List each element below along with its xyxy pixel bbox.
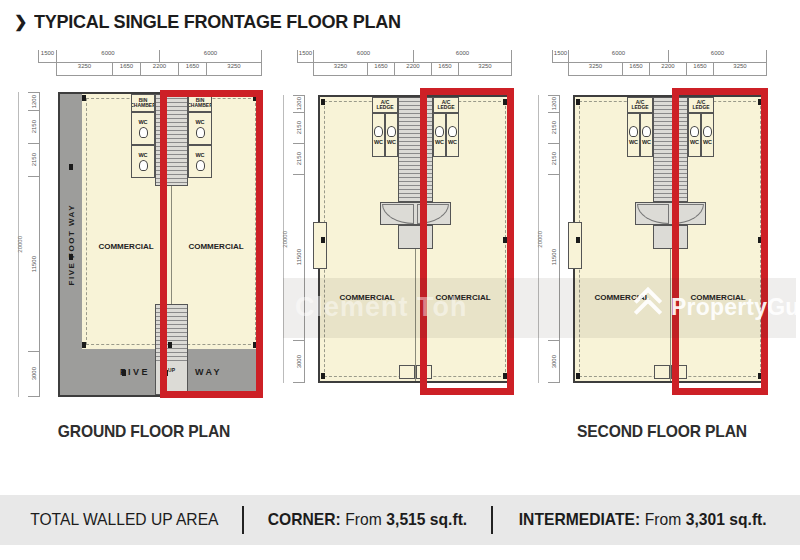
five-foot-way-left: FIVE FOOT WAY: [60, 94, 82, 395]
ac-ledge-side-box: [568, 222, 582, 269]
dimension-label: 6000: [456, 50, 469, 57]
highlighted-unit-outline: [672, 88, 768, 395]
dimension-column-left: 1200 2150 2150 11500 3000: [28, 92, 40, 397]
wc-room: WC: [385, 113, 398, 157]
dimension-label: 6000: [612, 50, 625, 57]
column-marker: [69, 164, 73, 170]
dimension-label: 2150: [31, 153, 37, 166]
brand-watermark-text: PropertyGuru: [671, 294, 800, 321]
dimension-row-top: 1500 6000 6000: [297, 50, 512, 63]
meter-box: [654, 365, 670, 379]
dimension-label: 3250: [78, 63, 91, 70]
column-marker: [576, 237, 580, 243]
column-marker: [82, 95, 86, 101]
dimension-label: 3000: [296, 355, 302, 368]
ground-floor-plan: 1500 6000 6000 3250 1650 2200 1650 3250 …: [18, 50, 270, 450]
dimension-label: 1500: [299, 50, 312, 57]
meter-box: [399, 365, 415, 379]
dimension-label: 1200: [296, 97, 302, 110]
intermediate-from: From: [645, 510, 681, 530]
dimension-label: 6000: [357, 50, 370, 57]
dimension-label: 1650: [374, 63, 387, 70]
wc-room: WC: [131, 145, 155, 178]
area-label: TOTAL WALLED UP AREA: [31, 510, 219, 530]
room-label: WC: [629, 139, 638, 145]
dimension-label: 6000: [204, 50, 217, 57]
dimension-total: 20000: [18, 92, 28, 397]
dimension-label: 3250: [478, 63, 491, 70]
dimension-label: 1650: [629, 63, 642, 70]
wc-room: WC: [372, 113, 385, 157]
divider: [491, 506, 493, 534]
dimension-label: 1500: [41, 50, 54, 57]
corner-from: From: [345, 510, 381, 530]
dimension-label: 11500: [551, 249, 557, 265]
column-marker: [122, 370, 126, 376]
total-walled-up-area-label: TOTAL WALLED UP AREA: [31, 510, 219, 530]
room-label: WC: [374, 139, 383, 145]
corner-area: CORNER: From 3,515 sq.ft.: [268, 510, 468, 530]
dimension-total: 20000: [538, 95, 548, 383]
ac-ledge-room: A/C LEDGE: [372, 97, 398, 113]
divider: [242, 506, 244, 534]
intermediate-value: 3,301 sq.ft.: [686, 510, 767, 530]
column-marker: [82, 342, 86, 348]
intermediate-area: INTERMEDIATE: From 3,301 sq.ft.: [519, 510, 767, 530]
dimension-label: 20000: [17, 236, 23, 253]
dimension-label: 2150: [551, 152, 557, 165]
dimension-label: 2150: [296, 121, 302, 134]
column-marker: [321, 373, 325, 379]
dimension-row-top: 1500 6000 6000: [552, 50, 767, 63]
room-label: A/C LEDGE: [373, 100, 397, 111]
toilet-icon: [139, 160, 148, 171]
room-label: WC: [138, 152, 147, 158]
wc-room: WC: [640, 113, 653, 157]
dimension-row-sub: 3250 1650 2200 1650 3250: [568, 63, 767, 76]
toilet-icon: [374, 126, 383, 137]
toilet-icon: [642, 126, 651, 137]
column-marker: [69, 254, 73, 260]
corner-label: CORNER:: [268, 510, 341, 530]
dimension-label: 1650: [438, 63, 451, 70]
dimension-label: 2150: [296, 152, 302, 165]
plan-label: SECOND FLOOR PLAN: [546, 422, 778, 442]
dimension-label: 6000: [711, 50, 724, 57]
dimension-label: 1200: [551, 97, 557, 110]
dimension-total: 20000: [283, 95, 293, 383]
column-marker: [576, 373, 580, 379]
column-marker: [321, 237, 325, 243]
dimension-label: 20000: [537, 231, 543, 248]
ac-ledge-side-box: [313, 222, 327, 269]
commercial-label: COMMERCIAL: [98, 242, 153, 251]
dimension-row-top: 1500 6000 6000: [38, 50, 262, 63]
area-summary-bar: TOTAL WALLED UP AREA CORNER: From 3,515 …: [0, 495, 800, 545]
dimension-label: 3000: [31, 367, 37, 380]
room-label: BIN CHAMBER: [131, 98, 155, 109]
dimension-label: 1650: [186, 63, 199, 70]
page-title-text: TYPICAL SINGLE FRONTAGE FLOOR PLAN: [34, 11, 401, 33]
room-label: A/C LEDGE: [628, 100, 652, 111]
dimension-label: 3250: [334, 63, 347, 70]
room-label: WC: [138, 119, 147, 125]
dimension-label: 2200: [661, 63, 674, 70]
first-floor-plan: 1500 6000 6000 3250 1650 2200 1650 3250 …: [283, 50, 531, 450]
room-label: WC: [387, 139, 396, 145]
dimension-label: 1500: [554, 50, 567, 57]
dimension-label: 3000: [551, 355, 557, 368]
chevron-right-icon: ❯: [14, 14, 27, 30]
dimension-label: 1200: [31, 95, 37, 108]
dimension-column-left: 1200 2150 2150 11500 3000: [548, 95, 560, 383]
dimension-label: 3250: [733, 63, 746, 70]
dimension-label: 2150: [551, 121, 557, 134]
dimension-label: 1650: [120, 63, 133, 70]
column-marker: [576, 99, 580, 105]
second-floor-plan: 1500 6000 6000 3250 1650 2200 1650 3250 …: [536, 50, 788, 450]
dimension-label: 2200: [153, 63, 166, 70]
plan-label: GROUND FLOOR PLAN: [28, 422, 260, 442]
toilet-icon: [139, 127, 148, 138]
corner-value: 3,515 sq.ft.: [387, 510, 468, 530]
room-label: WC: [642, 139, 651, 145]
page-title: ❯ TYPICAL SINGLE FRONTAGE FLOOR PLAN: [14, 11, 420, 33]
dimension-label: 3250: [227, 63, 240, 70]
dimension-label: 11500: [296, 249, 302, 265]
dimension-column-left: 1200 2150 2150 11500 3000: [293, 95, 305, 383]
five-foot-way-label: FIVE FOOT WAY: [67, 204, 76, 285]
dimension-label: 2150: [31, 120, 37, 133]
wc-room: WC: [131, 112, 155, 145]
dimension-row-sub: 3250 1650 2200 1650 3250: [56, 63, 262, 76]
dimension-label: 2200: [406, 63, 419, 70]
brand-watermark: PropertyGuru: [633, 289, 800, 325]
dimension-label: 20000: [282, 231, 288, 248]
dimension-label: 11500: [31, 256, 37, 272]
intermediate-label: INTERMEDIATE:: [519, 510, 640, 530]
propertyguru-logo-icon: [633, 289, 663, 325]
dimension-label: 1650: [693, 63, 706, 70]
toilet-icon: [629, 126, 638, 137]
floor-plan-sheet: ❯ TYPICAL SINGLE FRONTAGE FLOOR PLAN 150…: [0, 0, 800, 560]
highlighted-unit-outline: [420, 88, 514, 395]
column-marker: [321, 99, 325, 105]
watermark-band: Clement Toh PropertyGuru: [283, 278, 796, 338]
bin-chamber-room: BIN CHAMBER: [131, 94, 155, 112]
toilet-icon: [387, 126, 396, 137]
highlighted-unit-outline: [160, 90, 263, 398]
dimension-label: 6000: [101, 50, 114, 57]
ac-ledge-room: A/C LEDGE: [627, 97, 653, 113]
dimension-row-sub: 3250 1650 2200 1650 3250: [313, 63, 512, 76]
dimension-label: 3250: [589, 63, 602, 70]
agent-watermark: Clement Toh: [295, 292, 468, 323]
wc-room: WC: [627, 113, 640, 157]
